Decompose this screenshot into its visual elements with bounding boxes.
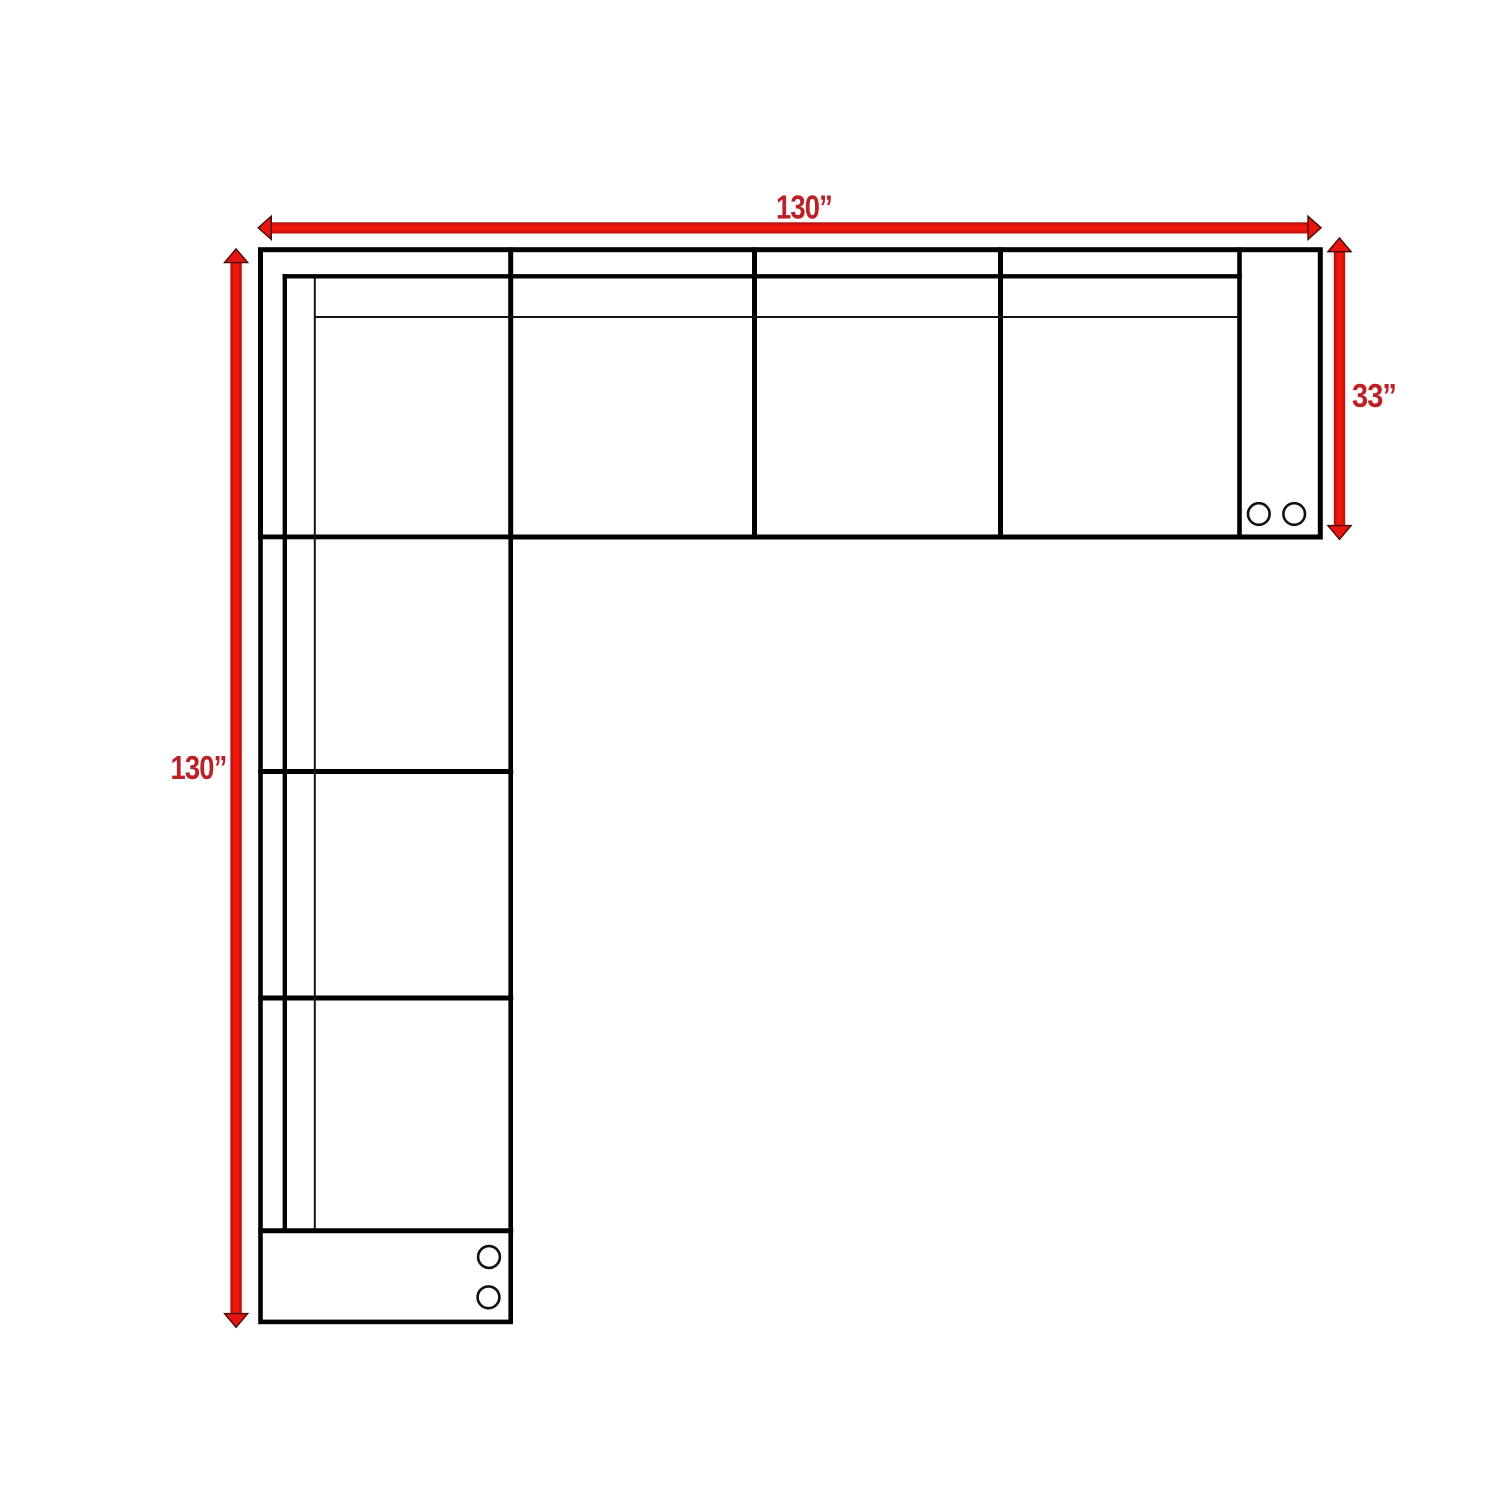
svg-text:130”: 130” <box>171 749 227 786</box>
svg-text:130”: 130” <box>776 189 832 226</box>
svg-text:33”: 33” <box>1352 377 1396 414</box>
